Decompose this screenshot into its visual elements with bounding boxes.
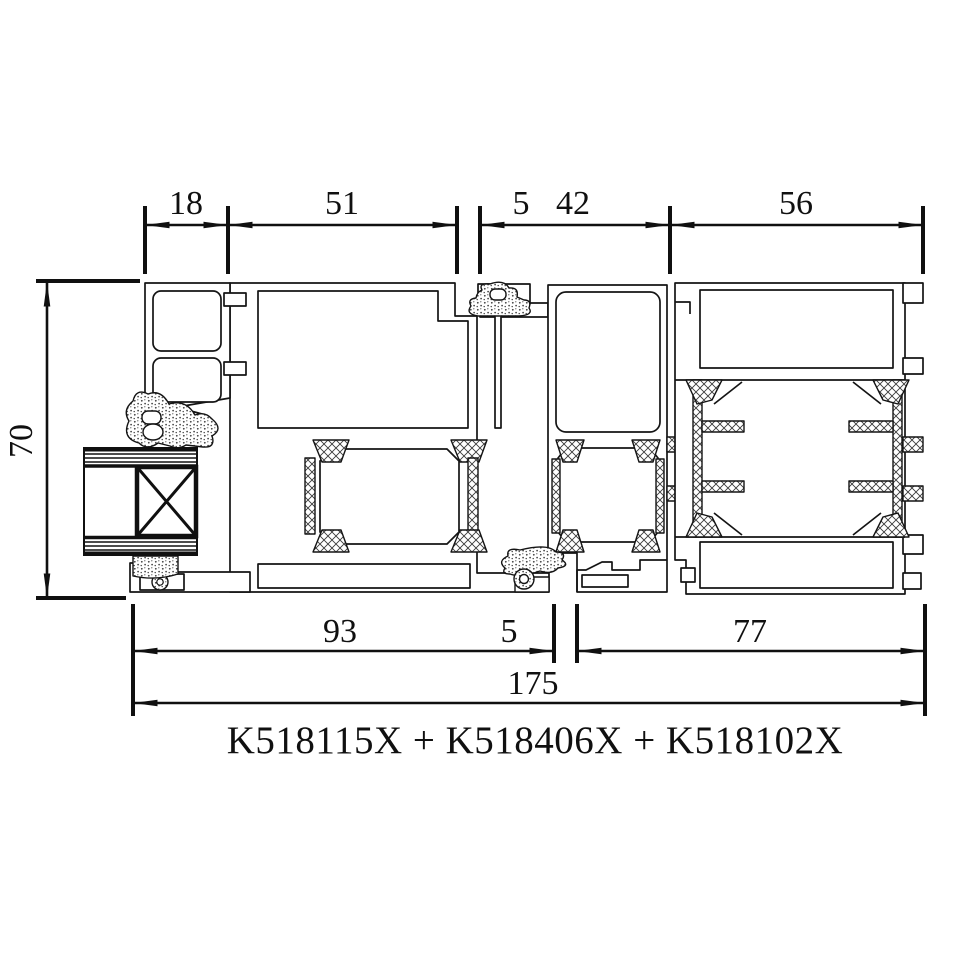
meeting-gasket-bottom-bulb-hole <box>520 575 529 584</box>
right-frame-foot-notch <box>681 568 695 582</box>
mid-frame-bottom-chamber <box>582 575 628 587</box>
dim-label-bottom-93: 93 <box>323 613 357 650</box>
cad-drawing-svg: 18 51 5 42 56 70 93 5 77 175 <box>0 0 960 960</box>
sash-top-chamber <box>258 291 468 428</box>
dim-label-top-5: 5 <box>513 185 530 222</box>
meeting-gasket-bottom-flat <box>502 547 566 576</box>
right-frame-profile-body <box>675 283 923 594</box>
dim-label-bottom-5: 5 <box>501 613 518 650</box>
profile-cross-section-drawing: 18 51 5 42 56 70 93 5 77 175 K518115X + … <box>0 0 960 960</box>
bead-chamber-upper <box>153 291 221 351</box>
bead-hook-notch-2 <box>224 362 246 375</box>
euro-groove-tab-1 <box>903 283 923 303</box>
mid-frame-top-chamber <box>556 292 660 432</box>
euro-groove-tab-2 <box>903 358 923 374</box>
dim-label-top-42: 42 <box>556 185 590 222</box>
meeting-gasket-top-hole <box>490 289 506 300</box>
drawing-title-part-codes: K518115X + K518406X + K518102X <box>140 718 930 763</box>
right-frame-top-chamber <box>700 290 893 368</box>
dim-label-bottom-175: 175 <box>508 665 559 702</box>
dim-label-left-70: 70 <box>3 424 40 458</box>
dim-label-bottom-77: 77 <box>733 613 767 650</box>
euro-groove-tab-4 <box>903 573 921 589</box>
glazing-gasket-top-hole-2 <box>143 424 163 440</box>
right-frame-bottom-chamber <box>700 542 893 588</box>
glazing-unit <box>83 448 198 555</box>
glazing-packer-bottom <box>133 556 178 578</box>
sash-bottom-chamber <box>258 564 470 588</box>
dim-label-top-56: 56 <box>779 185 813 222</box>
bead-hook-notch-1 <box>224 293 246 306</box>
glazing-gasket-top-hole-1 <box>142 411 161 424</box>
mid-frame-top-flange <box>480 303 548 428</box>
dim-label-top-51: 51 <box>325 185 359 222</box>
dim-label-top-18: 18 <box>169 185 203 222</box>
euro-groove-tab-3 <box>903 535 923 554</box>
